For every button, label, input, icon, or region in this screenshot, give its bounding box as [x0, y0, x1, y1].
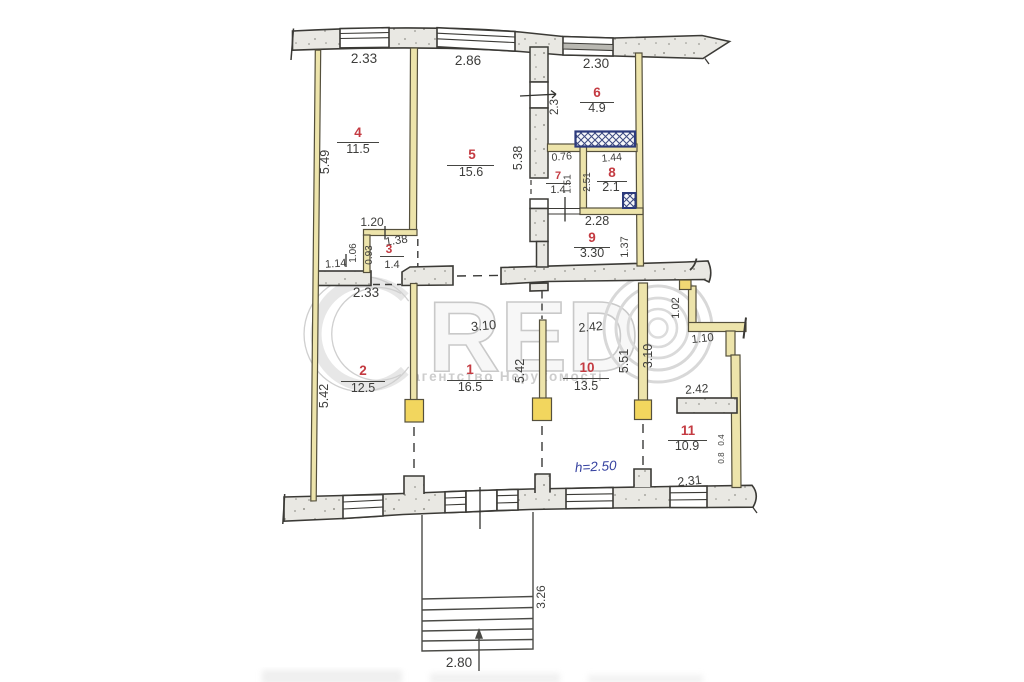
svg-text:4.9: 4.9: [588, 101, 605, 115]
svg-text:11.5: 11.5: [346, 142, 369, 156]
svg-text:3: 3: [386, 242, 393, 256]
svg-text:10: 10: [579, 360, 594, 375]
svg-text:2.42: 2.42: [685, 381, 710, 397]
svg-text:2.80: 2.80: [446, 655, 472, 670]
svg-text:2.86: 2.86: [455, 53, 481, 68]
svg-text:10.9: 10.9: [675, 439, 699, 453]
svg-text:15.6: 15.6: [459, 165, 483, 179]
svg-text:11: 11: [681, 423, 696, 438]
svg-text:2.30: 2.30: [583, 56, 609, 71]
svg-text:16.5: 16.5: [458, 380, 482, 394]
svg-text:7: 7: [555, 170, 561, 182]
svg-text:5.51: 5.51: [617, 349, 631, 373]
svg-text:1: 1: [466, 362, 474, 377]
svg-text:4: 4: [354, 125, 362, 140]
svg-text:5.38: 5.38: [511, 146, 525, 170]
svg-text:1.37: 1.37: [619, 236, 631, 257]
svg-text:2.51: 2.51: [582, 172, 593, 192]
svg-text:8: 8: [608, 165, 616, 180]
svg-text:1.02: 1.02: [670, 297, 682, 318]
svg-text:0.4: 0.4: [717, 434, 726, 446]
svg-text:12.5: 12.5: [351, 381, 375, 395]
svg-text:3.26: 3.26: [534, 585, 548, 609]
svg-text:1.10: 1.10: [691, 332, 715, 346]
svg-text:5.42: 5.42: [317, 384, 331, 408]
svg-text:5.42: 5.42: [513, 359, 527, 383]
svg-text:0.93: 0.93: [364, 245, 375, 265]
svg-text:2.1: 2.1: [602, 180, 619, 194]
svg-text:h=2.50: h=2.50: [575, 458, 618, 475]
svg-text:2.31: 2.31: [677, 473, 703, 489]
svg-text:5.49: 5.49: [318, 150, 332, 174]
svg-text:1.44: 1.44: [601, 151, 623, 165]
svg-text:13.5: 13.5: [574, 379, 598, 393]
svg-text:1.14: 1.14: [325, 257, 347, 270]
svg-text:0.8: 0.8: [717, 452, 726, 464]
svg-text:1.4: 1.4: [384, 259, 399, 271]
svg-text:2: 2: [359, 363, 367, 378]
svg-text:1.20: 1.20: [360, 215, 384, 229]
svg-text:5: 5: [468, 147, 476, 162]
svg-text:9: 9: [588, 230, 596, 245]
svg-text:3.30: 3.30: [580, 246, 604, 260]
svg-text:2.33: 2.33: [353, 285, 379, 300]
svg-text:2.3: 2.3: [549, 99, 561, 115]
svg-text:1.06: 1.06: [348, 243, 359, 263]
svg-text:2.28: 2.28: [585, 214, 609, 228]
svg-text:3.10: 3.10: [470, 317, 497, 334]
svg-text:2.42: 2.42: [578, 319, 604, 335]
svg-text:3.10: 3.10: [641, 344, 655, 368]
svg-text:1.4: 1.4: [550, 184, 565, 196]
svg-text:2.33: 2.33: [351, 51, 377, 66]
svg-text:0.76: 0.76: [551, 150, 573, 164]
svg-text:6: 6: [593, 85, 601, 100]
